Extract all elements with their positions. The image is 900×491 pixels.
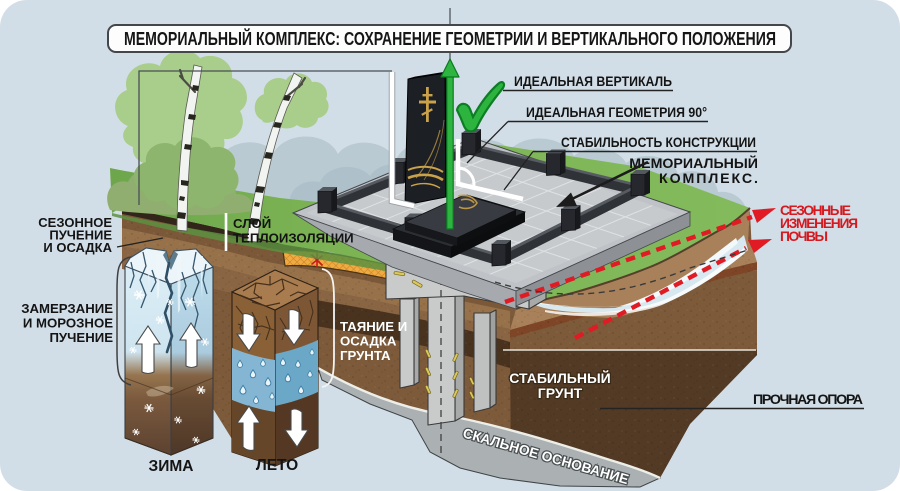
svg-text:И ОСАДКА: И ОСАДКА (43, 240, 112, 255)
svg-text:ТАЯНИЕ И: ТАЯНИЕ И (340, 319, 407, 334)
svg-text:СЛОЙ: СЛОЙ (233, 216, 271, 231)
svg-text:ГРУНТА: ГРУНТА (340, 348, 391, 363)
svg-text:И МОРОЗНОЕ: И МОРОЗНОЕ (23, 316, 113, 331)
svg-text:ИДЕАЛЬНАЯ ГЕОМЕТРИЯ 90°: ИДЕАЛЬНАЯ ГЕОМЕТРИЯ 90° (526, 105, 707, 121)
svg-text:ПРОЧНАЯ ОПОРА: ПРОЧНАЯ ОПОРА (753, 392, 863, 408)
svg-text:ГРУНТ: ГРУНТ (538, 385, 583, 401)
svg-text:ПОЧВЫ: ПОЧВЫ (780, 229, 828, 244)
svg-text:КОМПЛЕКС.: КОМПЛЕКС. (659, 171, 758, 187)
svg-text:ИДЕАЛЬНАЯ ВЕРТИКАЛЬ: ИДЕАЛЬНАЯ ВЕРТИКАЛЬ (514, 74, 672, 90)
svg-text:СТАБИЛЬНОСТЬ КОНСТРУКЦИИ: СТАБИЛЬНОСТЬ КОНСТРУКЦИИ (561, 135, 756, 151)
svg-text:ЛЕТО: ЛЕТО (256, 457, 298, 474)
svg-text:СТАБИЛЬНЫЙ: СТАБИЛЬНЫЙ (509, 369, 610, 386)
svg-text:ЗАМЕРЗАНИЕ: ЗАМЕРЗАНИЕ (21, 301, 113, 316)
svg-text:ОСАДКА: ОСАДКА (340, 334, 397, 349)
svg-text:ПУЧЕНИЕ: ПУЧЕНИЕ (49, 330, 113, 345)
svg-text:ТЕПЛОИЗОЛЯЦИИ: ТЕПЛОИЗОЛЯЦИИ (233, 231, 354, 246)
svg-text:МЕМОРИАЛЬНЫЙ: МЕМОРИАЛЬНЫЙ (629, 154, 758, 172)
svg-text:МЕМОРИАЛЬНЫЙ КОМПЛЕКС: СОХРАНЕ: МЕМОРИАЛЬНЫЙ КОМПЛЕКС: СОХРАНЕНИЕ ГЕОМЕТ… (124, 28, 776, 49)
svg-text:ЗИМА: ЗИМА (149, 458, 194, 475)
